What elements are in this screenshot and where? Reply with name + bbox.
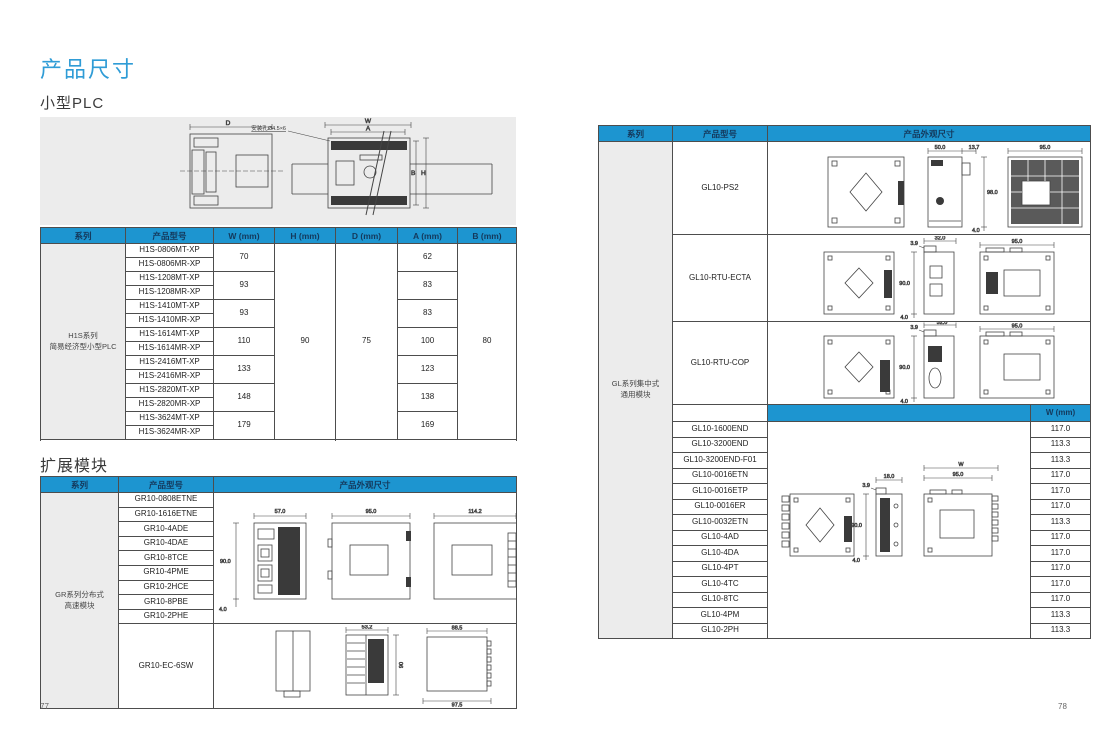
dim-b-label: 3.9 (910, 325, 918, 331)
dim-w3: 114.2 (434, 509, 516, 519)
ps2-dims: 50.0 13.7 98.0 4.0 (928, 145, 998, 233)
dim-a-label: 32.0 (937, 322, 948, 326)
gl-rtu-ecta-drawing: 3.9 32.0 90.0 4.0 (768, 236, 1091, 320)
dim-h-label: 98.0 (987, 190, 998, 196)
series-cell: GL系列集中式 通用模块 (599, 142, 673, 639)
cop-view-2 (924, 330, 954, 398)
glc-view-2 (876, 488, 902, 556)
cop-view-3 (980, 332, 1054, 398)
dim-off-label: 4.0 (219, 607, 227, 613)
w-cell: 117.0 (1031, 530, 1091, 546)
col-header-series: 系列 (599, 126, 673, 142)
dim-w-a: W A (325, 118, 411, 135)
plc-overview-svg: D W A (40, 117, 516, 225)
table-row: GL系列集中式 通用模块 GL10-PS2 (599, 142, 1091, 235)
col-header-model: 产品型号 (126, 228, 214, 244)
model-cell: GR10-2PHE (119, 609, 214, 624)
mounting-hole-callout: 安装孔Ø4.5×6 (251, 124, 330, 141)
model-cell: GL10-4PM (673, 608, 768, 624)
model-cell: H1S-2820MR-XP (126, 398, 214, 412)
model-cell: H1S-0806MT-XP (126, 244, 214, 258)
model-cell: GL10-RTU-ECTA (673, 235, 768, 322)
w-cell: 117.0 (1031, 561, 1091, 577)
section-expansion-title: 扩展模块 (40, 452, 108, 476)
w-cell: 117.0 (1031, 546, 1091, 562)
series-line1: H1S系列 (41, 331, 125, 342)
dim-off-label: 4.0 (972, 228, 980, 233)
col-header-d: D (mm) (336, 228, 398, 244)
model-cell: H1S-2416MT-XP (126, 356, 214, 370)
dim-w2: 95.0 (332, 509, 410, 519)
w-cell: 113.3 (1031, 437, 1091, 453)
w-cell: 113.3 (1031, 453, 1091, 469)
col-header-a: A (mm) (398, 228, 458, 244)
dim-a-label: A (366, 126, 371, 133)
col-header-w-only: W (mm) (1031, 405, 1091, 422)
model-cell: H1S-1410MT-XP (126, 300, 214, 314)
dim-a-label: 32.0 (935, 236, 946, 242)
dim-h-label: 90.0 (220, 559, 231, 565)
ec6sw-view-1 (276, 631, 310, 697)
gl-rtu-cop-drawing-cell: 3.9 32.0 90.0 4.0 (768, 322, 1091, 405)
glc-dims-right: W 95.0 (924, 462, 998, 481)
dim-off-label: 4.0 (900, 315, 908, 320)
model-cell: GR10-4DAE (119, 536, 214, 551)
col-header-h: H (mm) (275, 228, 336, 244)
rtu-view-3 (980, 248, 1054, 314)
model-cell: H1S-2820MT-XP (126, 384, 214, 398)
gl-ps2-drawing-cell: 50.0 13.7 98.0 4.0 (768, 142, 1091, 235)
table-header-row: 系列 产品型号 W (mm) H (mm) D (mm) A (mm) B (m… (41, 228, 517, 244)
model-cell: GR10-4PME (119, 565, 214, 580)
w-cell: 117.0 (1031, 592, 1091, 608)
col-header-model: 产品型号 (673, 126, 768, 142)
model-cell: GL10-8TC (673, 592, 768, 608)
model-cell: H1S-1614MR-XP (126, 342, 214, 356)
w-cell: 113.3 (1031, 608, 1091, 624)
ps2-view-2 (928, 157, 970, 227)
model-cell: GR10-8PBE (119, 595, 214, 610)
model-cell: GR10-1616ETNE (119, 507, 214, 522)
dim-d-label: D (226, 120, 231, 127)
table-row: GR系列分布式 高速模块 GR10-0808ETNE 90.0 4.0 (41, 493, 517, 508)
dim-a-label: 18.0 (884, 474, 895, 480)
model-cell: GL10-PS2 (673, 142, 768, 235)
dim-height: 90.0 4.0 (219, 523, 239, 613)
dim-c-label: 95.0 (1040, 145, 1051, 151)
table-row: GL10-1600END (599, 422, 1091, 438)
col-header-w: W (mm) (214, 228, 275, 244)
dim-wb-label: 97.5 (452, 703, 463, 708)
table-header-row: 系列 产品型号 产品外观尺寸 (41, 477, 517, 493)
gl-common-drawing: 3.9 18.0 90.0 4.0 (768, 430, 1031, 630)
w-cell: 70 (214, 244, 275, 272)
dim-w-label: W (365, 118, 372, 125)
gl-ps2-drawing: 50.0 13.7 98.0 4.0 (768, 143, 1091, 233)
dim-off-label: 4.0 (900, 399, 908, 404)
dim-w1: 57.0 (254, 509, 306, 519)
gl-common-drawing-cell: 3.9 18.0 90.0 4.0 (768, 422, 1031, 639)
a-cell: 123 (398, 356, 458, 384)
glc-view-1 (782, 494, 854, 556)
dim-h-label: 90.0 (899, 365, 910, 371)
gr-view-2 (328, 523, 411, 599)
series-cell: GR系列分布式 高速模块 (41, 493, 119, 709)
plc-overview-diagram: D W A (40, 117, 516, 225)
model-cell: GL10-3200END (673, 437, 768, 453)
b-cell: 80 (458, 244, 517, 440)
model-cell: H1S-0806MR-XP (126, 258, 214, 272)
dim-w1-label: 57.0 (275, 509, 286, 515)
page-title: 产品尺寸 (40, 52, 136, 84)
ec6sw-view-3 (427, 637, 491, 691)
plc-front-view (292, 131, 492, 215)
gl-module-table: 系列 产品型号 产品外观尺寸 GL系列集中式 通用模块 GL10-PS2 (598, 125, 1091, 639)
w-cell: 117.0 (1031, 422, 1091, 438)
d-cell: 75 (336, 244, 398, 440)
dim-h-label: H (421, 170, 426, 177)
model-cell: H1S-3624MT-XP (126, 412, 214, 426)
series-line1: GR系列分布式 (41, 590, 118, 601)
a-cell: 138 (398, 384, 458, 412)
dim-h-label: 90.0 (899, 281, 910, 287)
series-line2: 简易经济型小型PLC (41, 342, 125, 353)
page-number-right: 78 (1058, 702, 1067, 711)
col-header-b: B (mm) (458, 228, 517, 244)
model-cell: GR10-8TCE (119, 551, 214, 566)
subheader-row: W (mm) (599, 405, 1091, 422)
model-cell: H1S-1410MR-XP (126, 314, 214, 328)
rtu-dims: 3.9 32.0 90.0 4.0 (899, 236, 956, 320)
dim-h-label: 90.0 (851, 523, 862, 529)
dim-b-label: 3.9 (910, 241, 918, 247)
model-cell: GL10-4TC (673, 577, 768, 593)
gl-rtu-cop-drawing: 3.9 32.0 90.0 4.0 (768, 322, 1091, 404)
col-header-appearance: 产品外观尺寸 (768, 126, 1091, 142)
h-cell: 90 (275, 244, 336, 440)
w-cell: 148 (214, 384, 275, 412)
a-cell: 100 (398, 328, 458, 356)
ec6sw-view-2 (346, 635, 388, 695)
col-header-model: 产品型号 (119, 477, 214, 493)
h1s-dimension-table: 系列 产品型号 W (mm) H (mm) D (mm) A (mm) B (m… (40, 227, 517, 440)
model-cell: H1S-1614MT-XP (126, 328, 214, 342)
model-cell: GR10-4ADE (119, 522, 214, 537)
a-cell: 169 (398, 412, 458, 440)
col-header-appearance: 产品外观尺寸 (214, 477, 517, 493)
model-cell: GL10-0016ER (673, 499, 768, 515)
gr-view-3 (434, 523, 517, 599)
table-row: GL10-RTU-ECTA (599, 235, 1091, 322)
model-cell: GL10-4AD (673, 530, 768, 546)
cop-dim-c: 95.0 (980, 324, 1054, 333)
dim-off-label: 4.0 (852, 558, 860, 564)
model-cell: H1S-1208MT-XP (126, 272, 214, 286)
page-number-left: 77 (40, 702, 49, 711)
dim-w2-label: 88.5 (452, 626, 463, 632)
mounting-hole-label: 安装孔Ø4.5×6 (251, 124, 286, 132)
dim-b-h: B H (411, 138, 429, 208)
model-cell: GL10-0016ETP (673, 484, 768, 500)
dim-c-label: 95.0 (1012, 239, 1023, 245)
w-cell: 117.0 (1031, 499, 1091, 515)
w-cell: 113.3 (1031, 515, 1091, 531)
dim-c-label: 95.0 (953, 472, 964, 478)
dim-w2-label: 95.0 (366, 509, 377, 515)
w-cell: 117.0 (1031, 468, 1091, 484)
rtu-view-1 (824, 252, 894, 314)
gr-ec6sw-drawing: 53.2 90 (214, 625, 517, 707)
section-small-plc-title: 小型PLC (40, 92, 104, 113)
dim-w1-label: 53.2 (362, 625, 373, 631)
w-cell: 113.3 (1031, 623, 1091, 639)
model-cell: GR10-2HCE (119, 580, 214, 595)
model-cell: H1S-2416MR-XP (126, 370, 214, 384)
w-cell: 133 (214, 356, 275, 384)
w-cell: 93 (214, 272, 275, 300)
series-cell: H1S系列 简易经济型小型PLC (41, 244, 126, 440)
gl-rtu-ecta-drawing-cell: 3.9 32.0 90.0 4.0 (768, 235, 1091, 322)
a-cell: 83 (398, 272, 458, 300)
col-header-series: 系列 (41, 228, 126, 244)
dim-w3-label: 114.2 (468, 509, 481, 515)
rtu-view-2 (924, 246, 954, 314)
table-row: GL10-RTU-COP (599, 322, 1091, 405)
glc-view-3 (924, 490, 998, 556)
dim-a-label: 50.0 (935, 145, 946, 151)
ps2-dim-c: 95.0 (1008, 145, 1082, 154)
w-cell: 110 (214, 328, 275, 356)
model-cell: GL10-2PH (673, 623, 768, 639)
series-line2: 通用模块 (599, 390, 672, 401)
dim-w2-wb: 88.5 97.5 (423, 626, 491, 708)
dim-b-label: 3.9 (862, 483, 870, 489)
w-cell: 93 (214, 300, 275, 328)
model-cell: H1S-1208MR-XP (126, 286, 214, 300)
dim-c-label: 95.0 (1012, 324, 1023, 330)
glc-dims-mid: 3.9 18.0 90.0 4.0 (851, 474, 902, 564)
dim-b-label: 13.7 (969, 145, 980, 151)
model-cell: GL10-RTU-COP (673, 322, 768, 405)
model-cell: GL10-1600END (673, 422, 768, 438)
cop-view-1 (824, 336, 894, 398)
a-cell: 83 (398, 300, 458, 328)
table-row: H1S系列 简易经济型小型PLC H1S-0806MT-XP 70 90 75 … (41, 244, 517, 258)
model-cell: GL10-3200END-F01 (673, 453, 768, 469)
series-line2: 高速模块 (41, 601, 118, 612)
gr-modules-drawing-cell: 90.0 4.0 (214, 493, 517, 624)
table-header-row: 系列 产品型号 产品外观尺寸 (599, 126, 1091, 142)
model-cell: GL10-4PT (673, 561, 768, 577)
ps2-view-1 (828, 157, 904, 227)
w-cell: 179 (214, 412, 275, 440)
w-cell: 117.0 (1031, 577, 1091, 593)
rtu-dim-c: 95.0 (980, 239, 1054, 248)
dim-h-label: 90 (399, 662, 405, 668)
gr-view-1 (254, 523, 306, 599)
model-cell: H1S-3624MR-XP (126, 426, 214, 440)
gr-modules-drawing: 90.0 4.0 (214, 499, 517, 617)
dim-w-label: W (958, 462, 964, 468)
plc-side-view (180, 134, 283, 208)
blank-cell (673, 405, 768, 422)
gr-ec6sw-drawing-cell: 53.2 90 (214, 624, 517, 709)
appearance-blue-band (768, 405, 1031, 422)
model-cell: GR10-EC-6SW (119, 624, 214, 709)
w-cell: 117.0 (1031, 484, 1091, 500)
ps2-view-3 (1008, 157, 1082, 227)
model-cell: GL10-4DA (673, 546, 768, 562)
col-header-series: 系列 (41, 477, 119, 493)
model-cell: GR10-0808ETNE (119, 493, 214, 508)
model-cell: GL10-0016ETN (673, 468, 768, 484)
gr-expansion-table: 系列 产品型号 产品外观尺寸 GR系列分布式 高速模块 GR10-0808ETN… (40, 476, 517, 709)
series-line1: GL系列集中式 (599, 379, 672, 390)
dim-b-label: B (411, 170, 415, 177)
a-cell: 62 (398, 244, 458, 272)
cop-dims: 3.9 32.0 90.0 4.0 (899, 322, 956, 404)
model-cell: GL10-0032ETN (673, 515, 768, 531)
